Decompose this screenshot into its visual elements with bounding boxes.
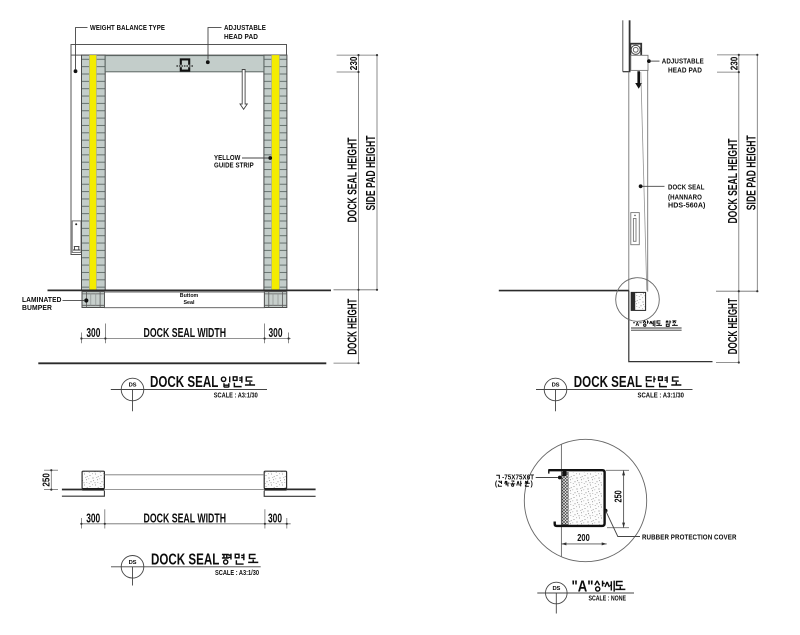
svg-text:YELLOW: YELLOW (214, 155, 241, 162)
svg-text:250: 250 (40, 473, 52, 487)
svg-text:ADJUSTABLE: ADJUSTABLE (224, 25, 266, 32)
svg-text:300: 300 (86, 326, 100, 340)
svg-text:SCALE : A3:1/30: SCALE : A3:1/30 (215, 570, 259, 577)
svg-text:300: 300 (268, 511, 282, 525)
svg-text:HEAD PAD: HEAD PAD (224, 34, 258, 41)
svg-text:WEIGHT BALANCE TYPE: WEIGHT BALANCE TYPE (90, 25, 165, 32)
svg-text:ADJUSTABLE: ADJUSTABLE (662, 59, 704, 66)
svg-text:(HANNARO: (HANNARO (668, 194, 702, 201)
svg-text:250: 250 (613, 490, 624, 503)
svg-text:BUMPER: BUMPER (22, 305, 52, 312)
svg-text:DOCK SEAL WIDTH: DOCK SEAL WIDTH (144, 326, 227, 340)
svg-text:230: 230 (728, 57, 740, 71)
svg-text:): ) (531, 481, 533, 488)
svg-text:SCALE : A3:1/30: SCALE : A3:1/30 (214, 392, 258, 399)
svg-text:DOCK SEAL WIDTH: DOCK SEAL WIDTH (144, 511, 227, 525)
svg-text:DOCK SEAL: DOCK SEAL (668, 184, 705, 191)
svg-text:"A": "A" (633, 322, 642, 328)
svg-text:HDS-560A): HDS-560A) (668, 202, 706, 209)
svg-text:DS: DS (552, 383, 560, 389)
svg-text:DOCK SEAL: DOCK SEAL (150, 374, 218, 391)
svg-text:SCALE : A3:1/30: SCALE : A3:1/30 (638, 392, 685, 399)
svg-text:DOCK SEAL: DOCK SEAL (574, 374, 642, 391)
svg-text:Seal: Seal (184, 300, 195, 306)
svg-text:RUBBER PROTECTION COVER: RUBBER PROTECTION COVER (642, 534, 737, 541)
svg-text:200: 200 (577, 533, 590, 544)
svg-text:230: 230 (348, 56, 360, 70)
svg-text:DOCK HEIGHT: DOCK HEIGHT (725, 298, 740, 354)
svg-text:SCALE : NONE: SCALE : NONE (589, 596, 627, 603)
svg-text:HEAD PAD: HEAD PAD (668, 68, 702, 75)
svg-text:300: 300 (86, 511, 100, 525)
svg-text:DOCK HEIGHT: DOCK HEIGHT (345, 299, 360, 355)
svg-text:DS: DS (129, 383, 137, 389)
svg-text:Buttom: Buttom (180, 293, 199, 299)
svg-text:DOCK SEAL HEIGHT: DOCK SEAL HEIGHT (345, 137, 360, 222)
svg-text:DS: DS (129, 560, 137, 566)
svg-text:GUIDE STRIP: GUIDE STRIP (214, 162, 254, 169)
svg-text:DOCK SEAL: DOCK SEAL (151, 551, 219, 568)
svg-text:300: 300 (269, 326, 283, 340)
svg-text:LAMINATED: LAMINATED (22, 297, 62, 304)
svg-text:SIDE PAD HEIGHT: SIDE PAD HEIGHT (744, 135, 759, 210)
svg-text:"A": "A" (572, 579, 594, 596)
svg-text:DOCK SEAL HEIGHT: DOCK SEAL HEIGHT (725, 138, 740, 223)
svg-text:SIDE PAD HEIGHT: SIDE PAD HEIGHT (363, 135, 378, 210)
svg-text:DS: DS (552, 586, 560, 592)
